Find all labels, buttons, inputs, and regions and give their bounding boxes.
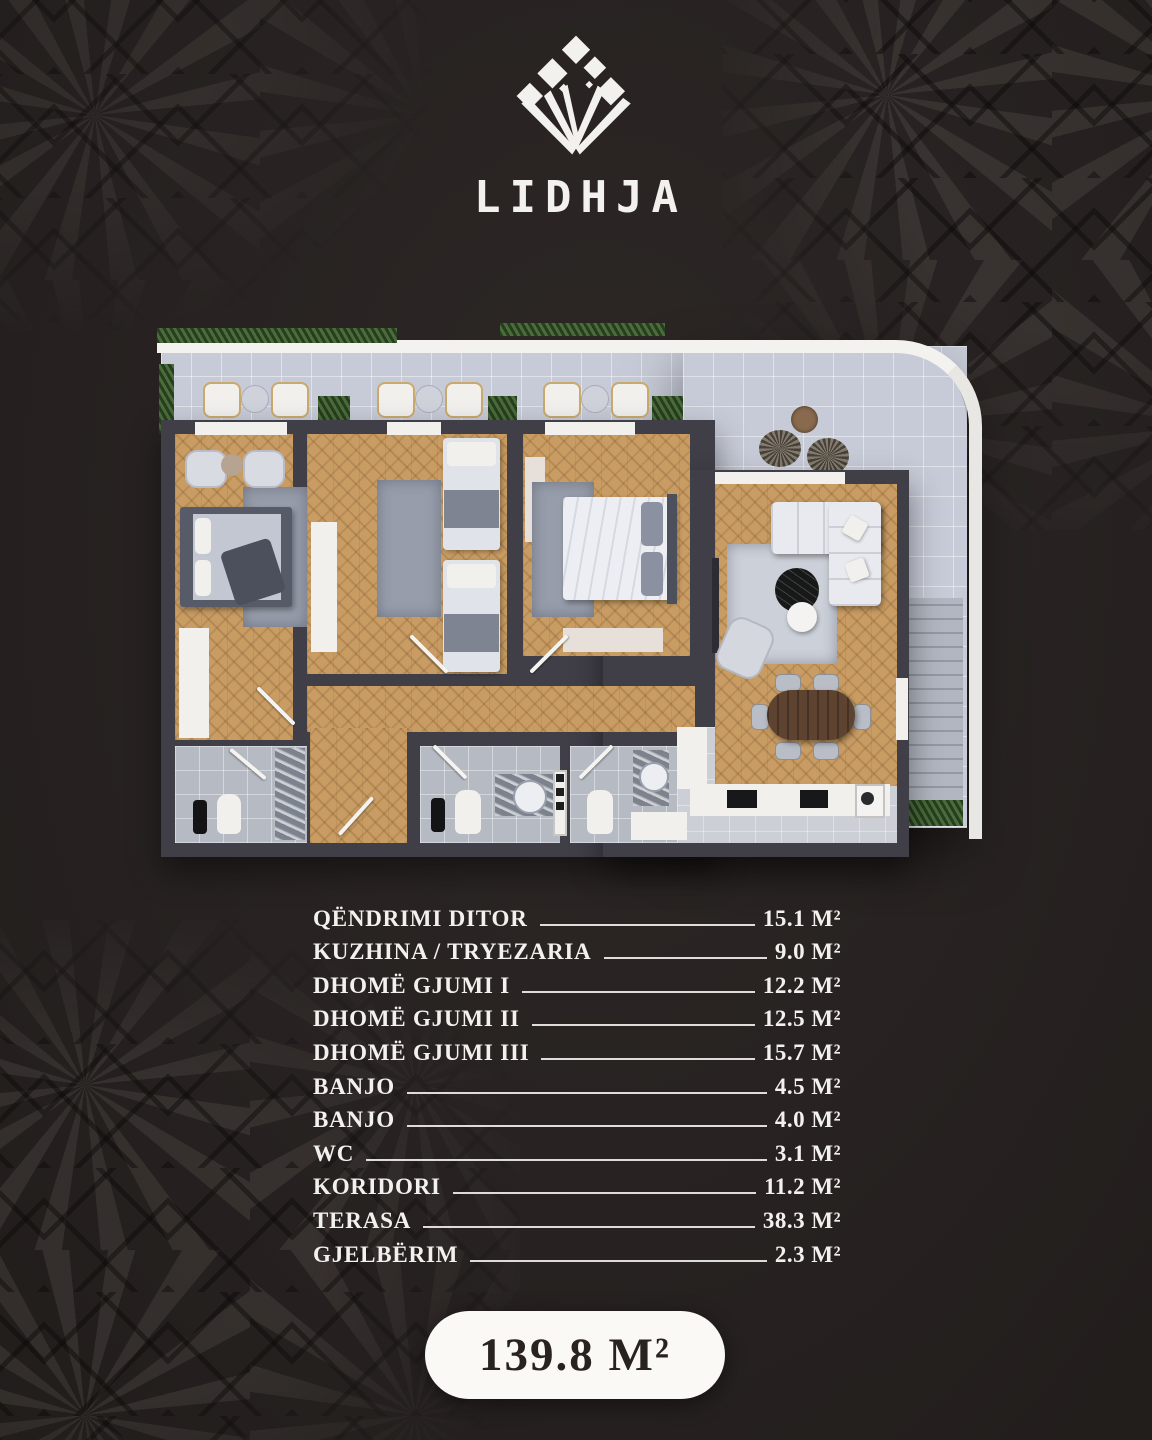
room-label: KUZHINA / TRYEZARIA (313, 939, 592, 965)
leader-line (366, 1159, 767, 1161)
poster-page: LIDHJA (0, 0, 1152, 1440)
bathroom-1-toilet (455, 790, 481, 834)
room-label: DHOMË GJUMI III (313, 1040, 529, 1066)
leader-line (453, 1192, 756, 1194)
cooktop-2 (800, 790, 828, 808)
tv-console (712, 558, 719, 653)
wc-toilet (217, 794, 241, 834)
appliance-square (556, 774, 564, 782)
room-area: 3.1 M² (775, 1141, 841, 1167)
leader-line (532, 1024, 755, 1026)
bathroom-1-basin (513, 780, 547, 814)
lidhja-diamond-logo-icon (510, 26, 642, 166)
bedroom-3-pillow (641, 502, 663, 546)
entry-corridor-floor (310, 728, 407, 843)
planter-box-3 (652, 396, 683, 423)
bathroom-2-shower-tray (631, 812, 687, 840)
bedroom-2-pillow (447, 564, 496, 588)
planter-box-1 (318, 396, 350, 423)
appliance-square (556, 788, 564, 796)
room-list-row: DHOMË GJUMI II 12.5 M² (313, 999, 841, 1033)
living-room-window (715, 472, 845, 484)
room-list-row: QËNDRIMI DITOR 15.1 M² (313, 898, 841, 932)
room-list-row: GJELBËRIM 2.3 M² (313, 1234, 841, 1268)
terrace-table (581, 385, 609, 413)
terrace-table (415, 385, 443, 413)
room-label: TERASA (313, 1208, 411, 1234)
hedge-top-left (157, 328, 397, 343)
room-list-row: KUZHINA / TRYEZARIA 9.0 M² (313, 932, 841, 966)
room-area: 38.3 M² (763, 1208, 841, 1234)
total-area-badge: 139.8 M² (425, 1311, 725, 1399)
wicker-table (791, 406, 818, 433)
room-label: WC (313, 1141, 354, 1167)
background-pattern-top-left (0, 0, 430, 330)
bedroom-2-rug (377, 480, 441, 617)
terrace-chair (203, 382, 241, 418)
dining-chair (775, 742, 801, 760)
corridor-floor (307, 686, 695, 732)
room-area: 12.5 M² (763, 1006, 841, 1032)
dining-chair (853, 704, 871, 730)
terrace-chair (445, 382, 483, 418)
terrace-table (241, 385, 269, 413)
room-label: GJELBËRIM (313, 1242, 458, 1268)
hedge-top-center (500, 323, 665, 336)
leader-line (407, 1125, 767, 1127)
bathroom-2-basin (639, 762, 669, 792)
room-area-list: QËNDRIMI DITOR 15.1 M² KUZHINA / TRYEZAR… (313, 898, 841, 1268)
leader-line (522, 991, 755, 993)
floor-plan (155, 322, 990, 875)
room-label: BANJO (313, 1074, 395, 1100)
wicker-chair (759, 430, 801, 467)
bedroom-2-pillow (447, 442, 496, 466)
bedroom-1-window (195, 422, 287, 435)
room-area: 4.0 M² (775, 1107, 841, 1133)
terrace-chair (543, 382, 581, 418)
terrace-door (896, 678, 908, 740)
room-list-row: BANJO 4.0 M² (313, 1100, 841, 1134)
leader-line (541, 1058, 754, 1060)
room-label: KORIDORI (313, 1174, 441, 1200)
bedroom-3-headboard (667, 494, 677, 604)
wc-marble-counter (275, 748, 305, 840)
terrace-chair (377, 382, 415, 418)
sink-basin (861, 792, 874, 805)
bedroom-1-armchair (185, 450, 227, 488)
room-area: 12.2 M² (763, 973, 841, 999)
room-list-row: TERASA 38.3 M² (313, 1200, 841, 1234)
bedroom-1-wardrobe (179, 628, 209, 738)
coffee-table-white (787, 602, 817, 632)
bedroom-1-side-table (221, 454, 243, 476)
total-area-value: 139.8 M² (479, 1328, 671, 1382)
room-label: DHOMË GJUMI II (313, 1006, 520, 1032)
leader-line (604, 957, 767, 959)
room-area: 11.2 M² (764, 1174, 841, 1200)
bedroom-1-pillow (195, 560, 211, 596)
bedroom-2-blanket (444, 614, 499, 652)
room-area: 15.7 M² (763, 1040, 841, 1066)
room-area: 15.1 M² (763, 906, 841, 932)
bedroom-1-pillow (195, 518, 211, 554)
room-list-row: WC 3.1 M² (313, 1133, 841, 1167)
cooktop (727, 790, 757, 808)
bedroom-3-window (545, 422, 635, 435)
room-list-row: DHOMË GJUMI III 15.7 M² (313, 1032, 841, 1066)
leader-line (423, 1226, 755, 1228)
leader-line (540, 924, 755, 926)
leader-line (470, 1260, 767, 1262)
bedroom-2-wardrobe (311, 522, 337, 652)
bedroom-3-pillow (641, 552, 663, 596)
room-area: 9.0 M² (775, 939, 841, 965)
kitchen-tall-cabinet (677, 727, 707, 789)
appliance-square (556, 802, 564, 810)
room-list-row: KORIDORI 11.2 M² (313, 1167, 841, 1201)
dining-table (767, 690, 855, 740)
brand-name: LIDHJA (0, 172, 1152, 223)
wc-fixture (193, 800, 207, 834)
room-label: BANJO (313, 1107, 395, 1133)
room-label: QËNDRIMI DITOR (313, 906, 528, 932)
room-list-row: BANJO 4.5 M² (313, 1066, 841, 1100)
leader-line (407, 1092, 767, 1094)
dining-chair (813, 742, 839, 760)
terrace-chair (611, 382, 649, 418)
bedroom-2-blanket (444, 490, 499, 528)
planter-box-2 (488, 396, 517, 423)
room-area: 2.3 M² (775, 1242, 841, 1268)
bedroom-1-armchair (243, 450, 285, 488)
room-label: DHOMË GJUMI I (313, 973, 510, 999)
room-list-row: DHOMË GJUMI I 12.2 M² (313, 965, 841, 999)
bathroom-1-fixture (431, 798, 445, 832)
bathroom-2-toilet (587, 790, 613, 834)
bedroom-2-window (387, 422, 441, 435)
room-area: 4.5 M² (775, 1074, 841, 1100)
grass-patch-bottom-right (905, 800, 963, 826)
bedroom-3-bench (563, 628, 663, 652)
terrace-chair (271, 382, 309, 418)
